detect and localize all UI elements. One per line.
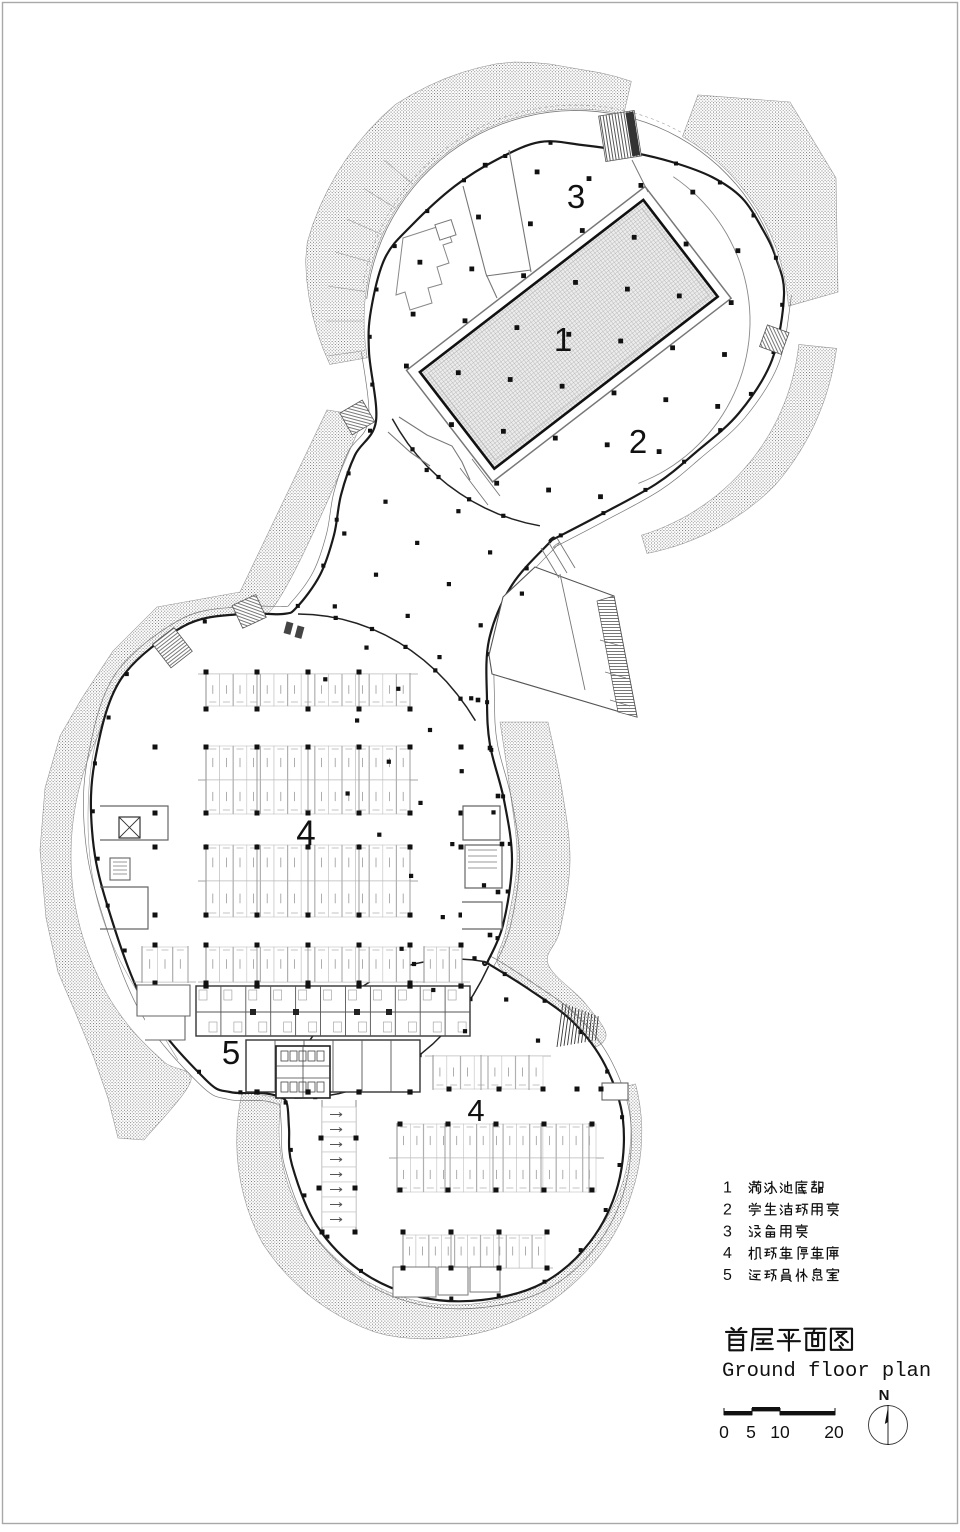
- svg-text:5: 5: [746, 1422, 756, 1442]
- svg-text:3: 3: [567, 178, 585, 215]
- svg-text:2: 2: [629, 423, 647, 460]
- svg-text:1: 1: [723, 1180, 732, 1197]
- svg-text:4: 4: [296, 814, 315, 853]
- svg-text:4: 4: [467, 1093, 484, 1128]
- svg-text:N: N: [879, 1387, 890, 1404]
- svg-text:5: 5: [222, 1034, 240, 1071]
- svg-text:1: 1: [554, 321, 572, 358]
- svg-text:Ground floor plan: Ground floor plan: [722, 1360, 931, 1383]
- svg-text:2: 2: [723, 1201, 732, 1218]
- svg-text:4: 4: [723, 1245, 732, 1262]
- svg-text:3: 3: [723, 1223, 732, 1240]
- svg-text:5: 5: [723, 1267, 732, 1284]
- svg-text:20: 20: [824, 1422, 844, 1442]
- svg-text:0: 0: [719, 1422, 729, 1442]
- svg-text:10: 10: [770, 1422, 790, 1442]
